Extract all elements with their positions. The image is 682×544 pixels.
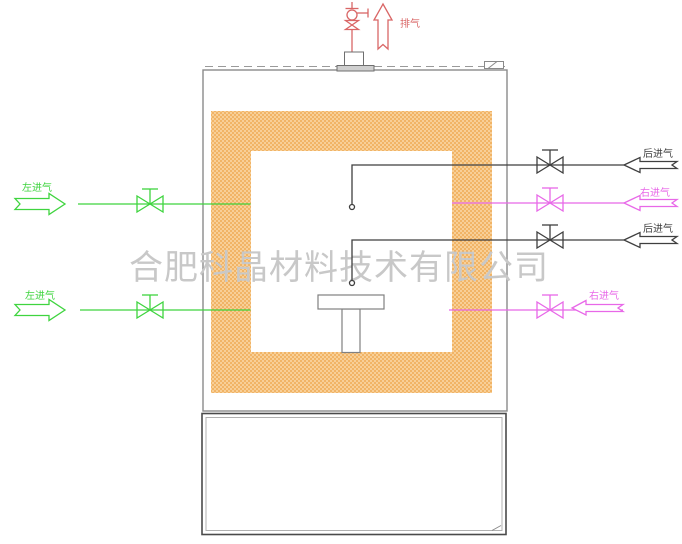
rear-inlet-nozzle-top bbox=[350, 205, 355, 210]
rear-inlet-label-bottom: 后进气 bbox=[643, 222, 673, 235]
sample-stage-stem bbox=[342, 309, 360, 353]
sample-stage-plate bbox=[318, 295, 384, 309]
rear-inlet-valve-top-icon bbox=[537, 150, 563, 173]
watermark: 合肥科晶材料技术有限公司 bbox=[129, 248, 549, 288]
base-cabinet-outline bbox=[202, 414, 506, 535]
base-cabinet bbox=[202, 414, 506, 535]
right-inlet-arrow-bottom-icon bbox=[572, 301, 623, 316]
right-inlet-label-bottom: 右进气 bbox=[589, 289, 619, 302]
rear-inlet-nozzle-bottom bbox=[350, 281, 355, 286]
exhaust-arrow-icon bbox=[374, 4, 392, 49]
rear-inlet-label-top: 后进气 bbox=[643, 147, 673, 160]
left-inlet-arrow-bottom-icon bbox=[15, 300, 65, 321]
right-inlet-valve-bottom-icon bbox=[537, 295, 563, 318]
right-inlet-label-top: 右进气 bbox=[640, 186, 670, 199]
exhaust-valve-icon bbox=[346, 9, 369, 30]
exhaust-assembly bbox=[346, 2, 393, 52]
left-inlet-label-top: 左进气 bbox=[22, 181, 52, 194]
left-inlet-label-bottom: 左进气 bbox=[25, 289, 55, 302]
top-flange-port bbox=[345, 52, 364, 66]
left-inlet-valve-bottom-icon bbox=[137, 295, 163, 318]
top-flange-plate bbox=[337, 66, 374, 72]
rear-inlet-valve-bottom-icon bbox=[537, 225, 563, 248]
exhaust-label: 排气 bbox=[400, 17, 420, 30]
left-inlet-valve-top-icon bbox=[137, 189, 163, 212]
lid-latch-icon bbox=[485, 62, 504, 69]
top-flange bbox=[337, 52, 374, 71]
furnace-schematic: 合肥科晶材料技术有限公司 后进气 后进气 bbox=[0, 0, 682, 544]
cad-canvas: 合肥科晶材料技术有限公司 后进气 后进气 bbox=[0, 0, 682, 544]
right-inlet-valve-top-icon bbox=[537, 188, 563, 211]
left-inlet-arrow-top-icon bbox=[15, 194, 65, 215]
